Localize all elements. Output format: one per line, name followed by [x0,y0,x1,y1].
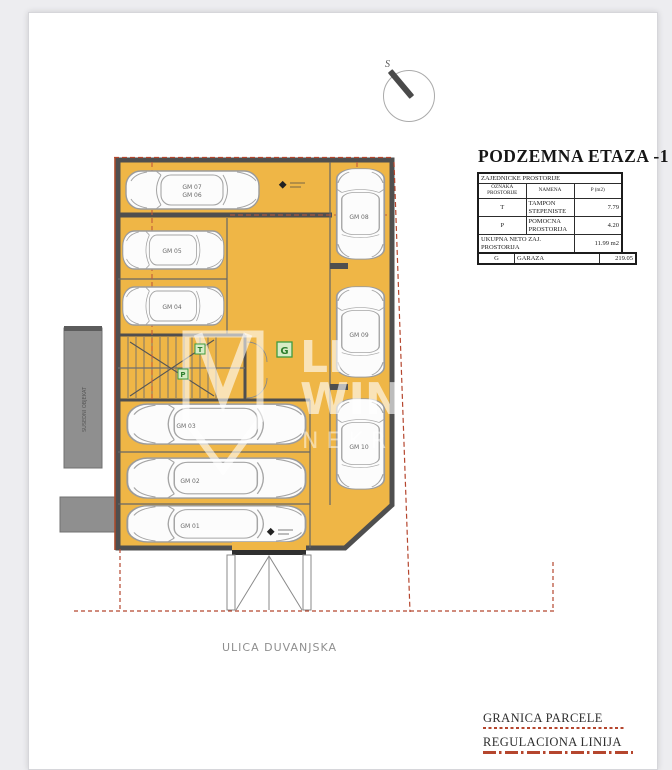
table-row: UKUPNA NETO ZAJ. PROSTORIJA 11.99 m2 [478,235,622,253]
table-row: OZNAKA PROSTORIJE NAMENA P (m2) [478,184,622,199]
svg-text:GM 08: GM 08 [349,214,369,221]
svg-text:GM 06: GM 06 [182,192,202,199]
col-header-namena: NAMENA [526,184,574,199]
tag-garage: G [280,346,288,357]
page-title: PODZEMNA ETAZA -1 [478,146,669,167]
garage-ramp [227,542,311,610]
cell-area: 4.20 [574,217,622,235]
table-span-header: ZAJEDNICKE PROSTORIJE [478,173,622,184]
legend-label: REGULACIONA LINIJA [483,735,653,750]
table-row: ZAJEDNICKE PROSTORIJE [478,173,622,184]
tag-stair: T [198,346,203,354]
svg-text:GM 04: GM 04 [162,304,182,311]
svg-text:GM 03: GM 03 [176,423,196,430]
garage-table: G GARAZA 219.05 [477,252,637,265]
col-header-povrsina: P (m2) [574,184,622,199]
regulaciona-linija-line-sample [483,751,633,753]
svg-text:GM 02: GM 02 [180,478,200,485]
cell-total-label: UKUPNA NETO ZAJ. PROSTORIJA [478,235,574,253]
neighbor-building: SUSEDNI OBJEKAT [60,326,118,532]
tag-aux: P [180,371,185,379]
svg-text:GM 10: GM 10 [349,444,369,451]
cell-code: P [478,217,526,235]
svg-text:GM 09: GM 09 [349,332,369,339]
table-row: T TAMPON STEPENISTE 7.79 [478,199,622,217]
cell-name: GARAZA [515,253,600,264]
common-rooms-table: ZAJEDNICKE PROSTORIJE OZNAKA PROSTORIJE … [477,172,623,254]
cell-name: POMOCNA PROSTORIJA [526,217,574,235]
watermark-line2: WIN [300,374,402,425]
compass-north-label: S [385,59,390,70]
cell-name: TAMPON STEPENISTE [526,199,574,217]
svg-text:GM 05: GM 05 [162,248,182,255]
table-row: G GARAZA 219.05 [478,253,636,264]
neighbor-building-label: SUSEDNI OBJEKAT [82,386,88,432]
col-header-oznaka: OZNAKA PROSTORIJE [478,184,526,199]
scanned-floorplan-page: { "page": { "title": "PODZEMNA ETAZA -1"… [0,0,672,768]
legend-item-regulaciona-linija: REGULACIONA LINIJA [483,735,653,753]
legend: GRANICA PARCELE REGULACIONA LINIJA [483,711,653,760]
watermark-line3: NEKR [302,429,394,454]
cell-total-value: 11.99 m2 [574,235,622,253]
street-label: ULICA DUVANJSKA [222,641,337,654]
cell-code: G [478,253,515,264]
cell-area: 7.79 [574,199,622,217]
svg-text:GM 07: GM 07 [182,184,202,191]
table-row: P POMOCNA PROSTORIJA 4.20 [478,217,622,235]
legend-label: GRANICA PARCELE [483,711,653,726]
north-compass: S [383,70,435,122]
cell-area: 219.05 [600,253,637,264]
granica-parcele-line-sample [483,727,625,729]
svg-text:GM 01: GM 01 [180,523,200,530]
cell-code: T [478,199,526,217]
legend-item-granica-parcele: GRANICA PARCELE [483,711,653,729]
